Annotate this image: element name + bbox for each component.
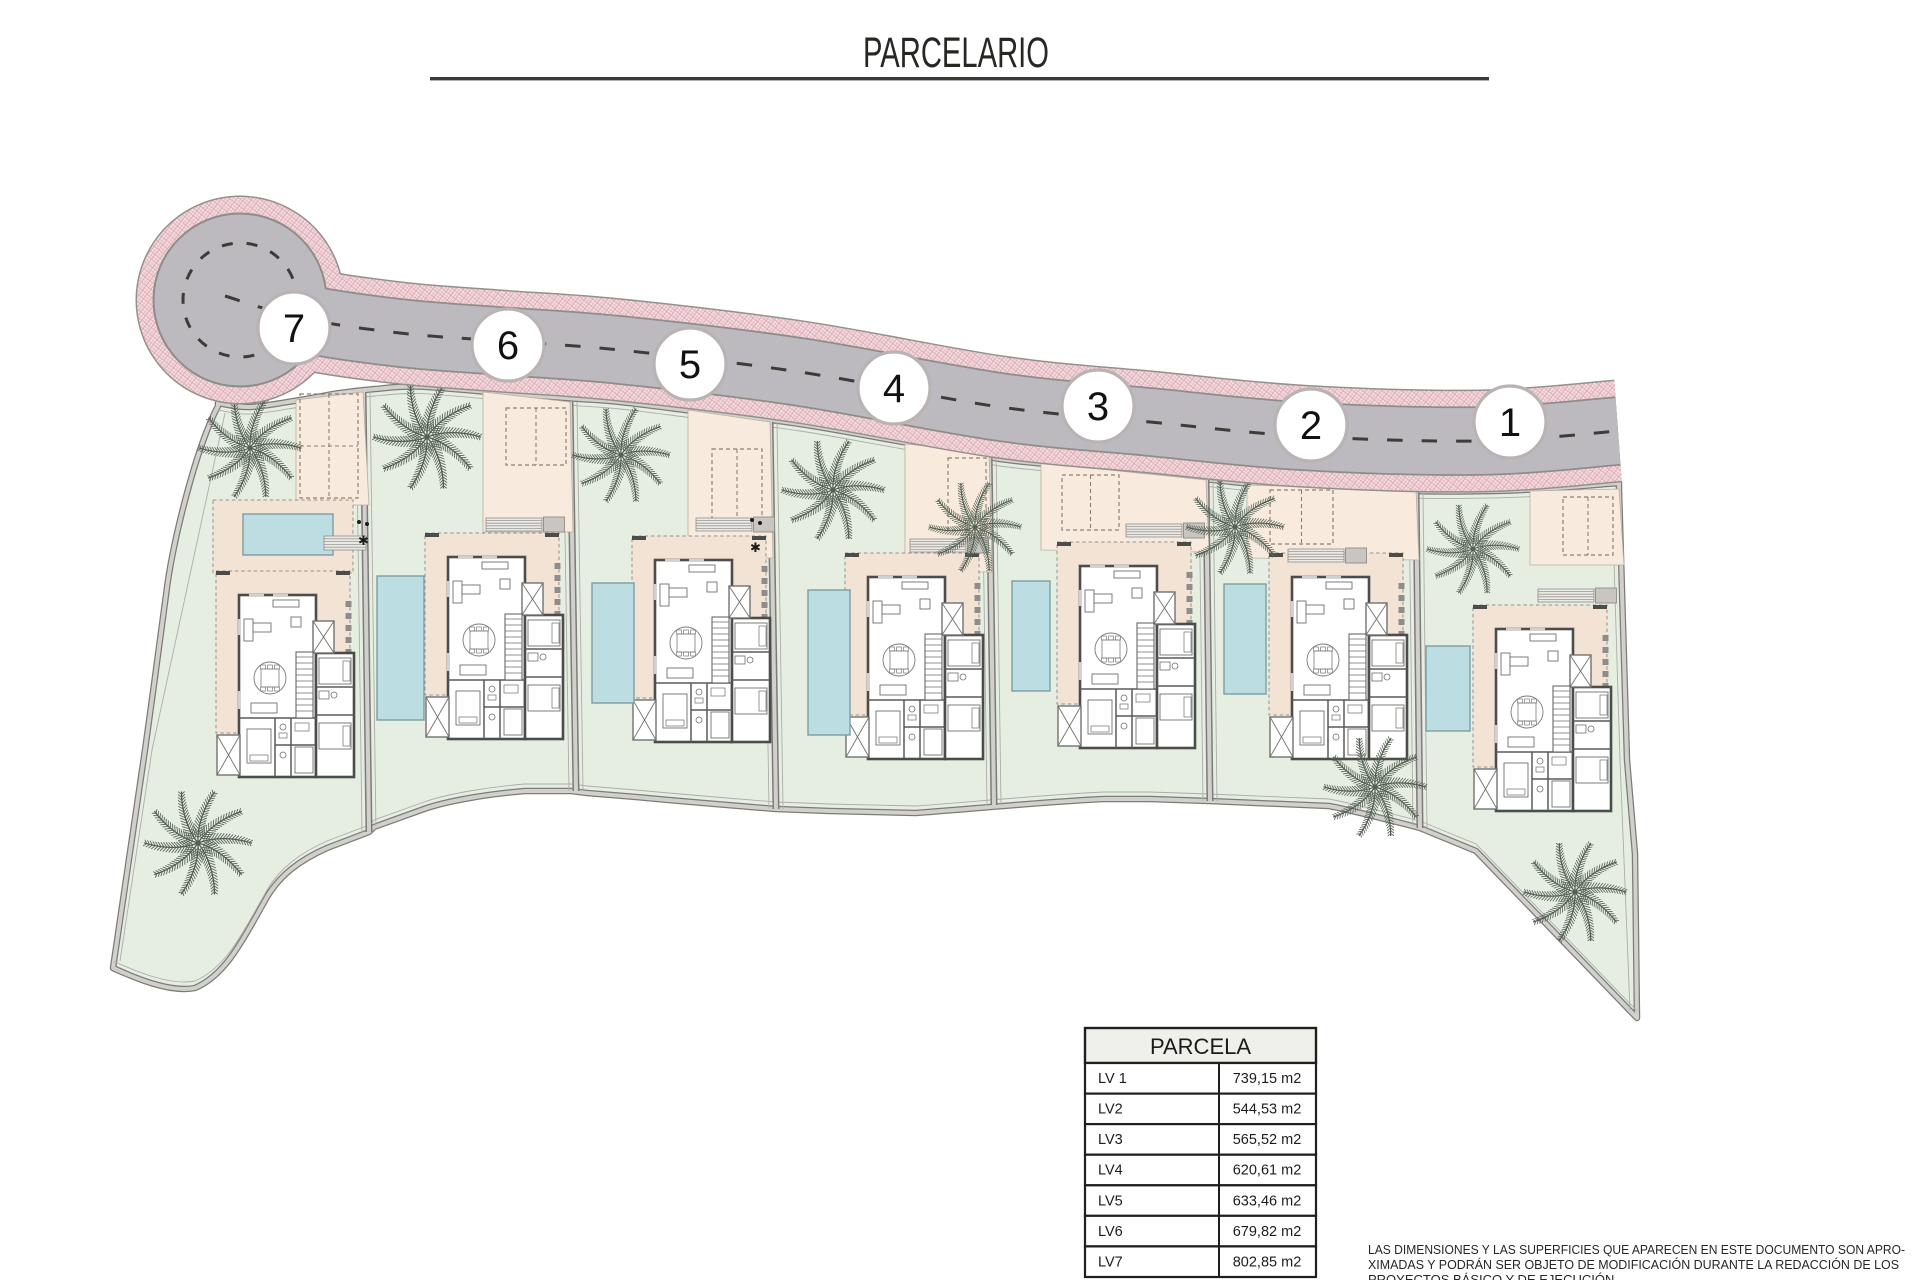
svg-text:PARCELARIO: PARCELARIO: [863, 29, 1049, 77]
svg-text:XIMADAS Y PODRÁN SER OBJETO DE: XIMADAS Y PODRÁN SER OBJETO DE MODIFICAC…: [1368, 1257, 1899, 1272]
svg-text:PARCELA: PARCELA: [1150, 1034, 1251, 1059]
svg-text:LV6: LV6: [1098, 1224, 1123, 1240]
svg-text:565,52 m2: 565,52 m2: [1233, 1132, 1302, 1148]
svg-text:620,61 m2: 620,61 m2: [1233, 1163, 1302, 1179]
svg-text:LV5: LV5: [1098, 1193, 1123, 1209]
svg-text:LV3: LV3: [1098, 1132, 1123, 1148]
svg-text:LAS DIMENSIONES Y LAS SUPERFIC: LAS DIMENSIONES Y LAS SUPERFICIES QUE AP…: [1368, 1242, 1905, 1257]
svg-text:LV 1: LV 1: [1098, 1071, 1127, 1087]
svg-text:1: 1: [1499, 401, 1521, 445]
svg-text:LV4: LV4: [1098, 1163, 1123, 1179]
svg-text:6: 6: [497, 324, 519, 368]
svg-text:739,15 m2: 739,15 m2: [1233, 1071, 1302, 1087]
svg-text:✱: ✱: [358, 533, 369, 548]
svg-text:3: 3: [1087, 385, 1109, 429]
svg-text:✱: ✱: [750, 540, 761, 555]
svg-text:LV2: LV2: [1098, 1102, 1123, 1118]
svg-text:679,82 m2: 679,82 m2: [1233, 1224, 1302, 1240]
svg-text:5: 5: [679, 343, 701, 387]
svg-text:PROYECTOS BÁSICO Y DE EJECUCIÓ: PROYECTOS BÁSICO Y DE EJECUCIÓN: [1368, 1272, 1614, 1280]
svg-text:4: 4: [883, 367, 905, 411]
svg-text:633,46 m2: 633,46 m2: [1233, 1193, 1302, 1209]
svg-text:544,53 m2: 544,53 m2: [1233, 1102, 1302, 1118]
svg-text:7: 7: [283, 307, 305, 351]
svg-text:802,85 m2: 802,85 m2: [1233, 1254, 1302, 1270]
svg-text:2: 2: [1300, 404, 1322, 448]
svg-text:LV7: LV7: [1098, 1254, 1123, 1270]
